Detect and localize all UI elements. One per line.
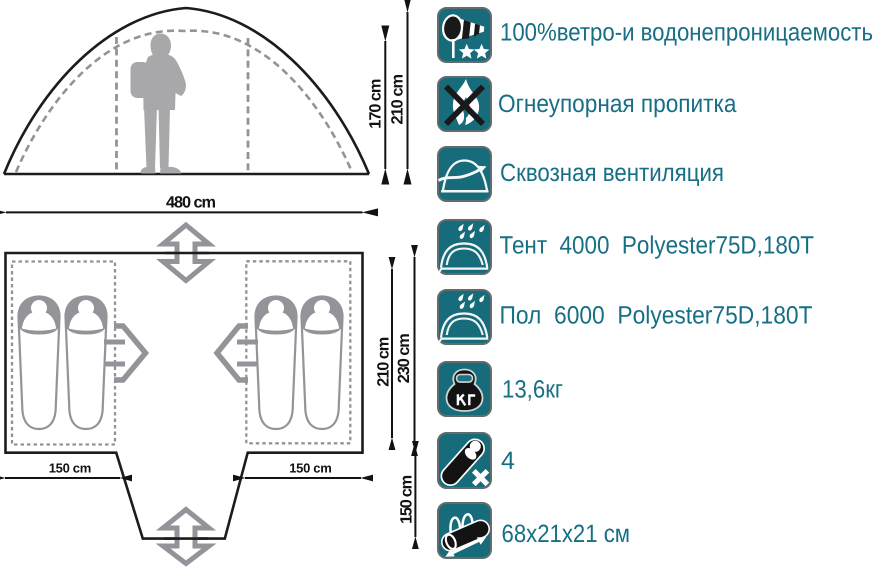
svg-text:100%ветро-и водонепроницаемост: 100%ветро-и водонепроницаемость [500,19,873,47]
svg-text:68x21x21 см: 68x21x21 см [502,520,631,548]
svg-text:210 cm: 210 cm [375,337,393,387]
svg-text:Огнеупорная пропитка: Огнеупорная пропитка [498,90,737,118]
svg-text:Пол 6000 Polyester75D,180T: Пол 6000 Polyester75D,180T [500,302,813,330]
svg-text:480 cm: 480 cm [166,194,216,212]
svg-text:4: 4 [501,447,515,475]
svg-text:210 cm: 210 cm [389,74,407,125]
svg-text:170 cm: 170 cm [367,79,385,129]
svg-text:230 cm: 230 cm [395,333,413,383]
svg-text:150 cm: 150 cm [289,461,332,476]
svg-text:Тент 4000 Polyester75D,180T: Тент 4000 Polyester75D,180T [500,232,815,260]
svg-text:150 cm: 150 cm [398,475,416,524]
svg-text:Сквозная вентиляция: Сквозная вентиляция [500,159,724,187]
svg-text:13,6кг: 13,6кг [502,376,563,404]
svg-text:150 cm: 150 cm [49,461,92,476]
